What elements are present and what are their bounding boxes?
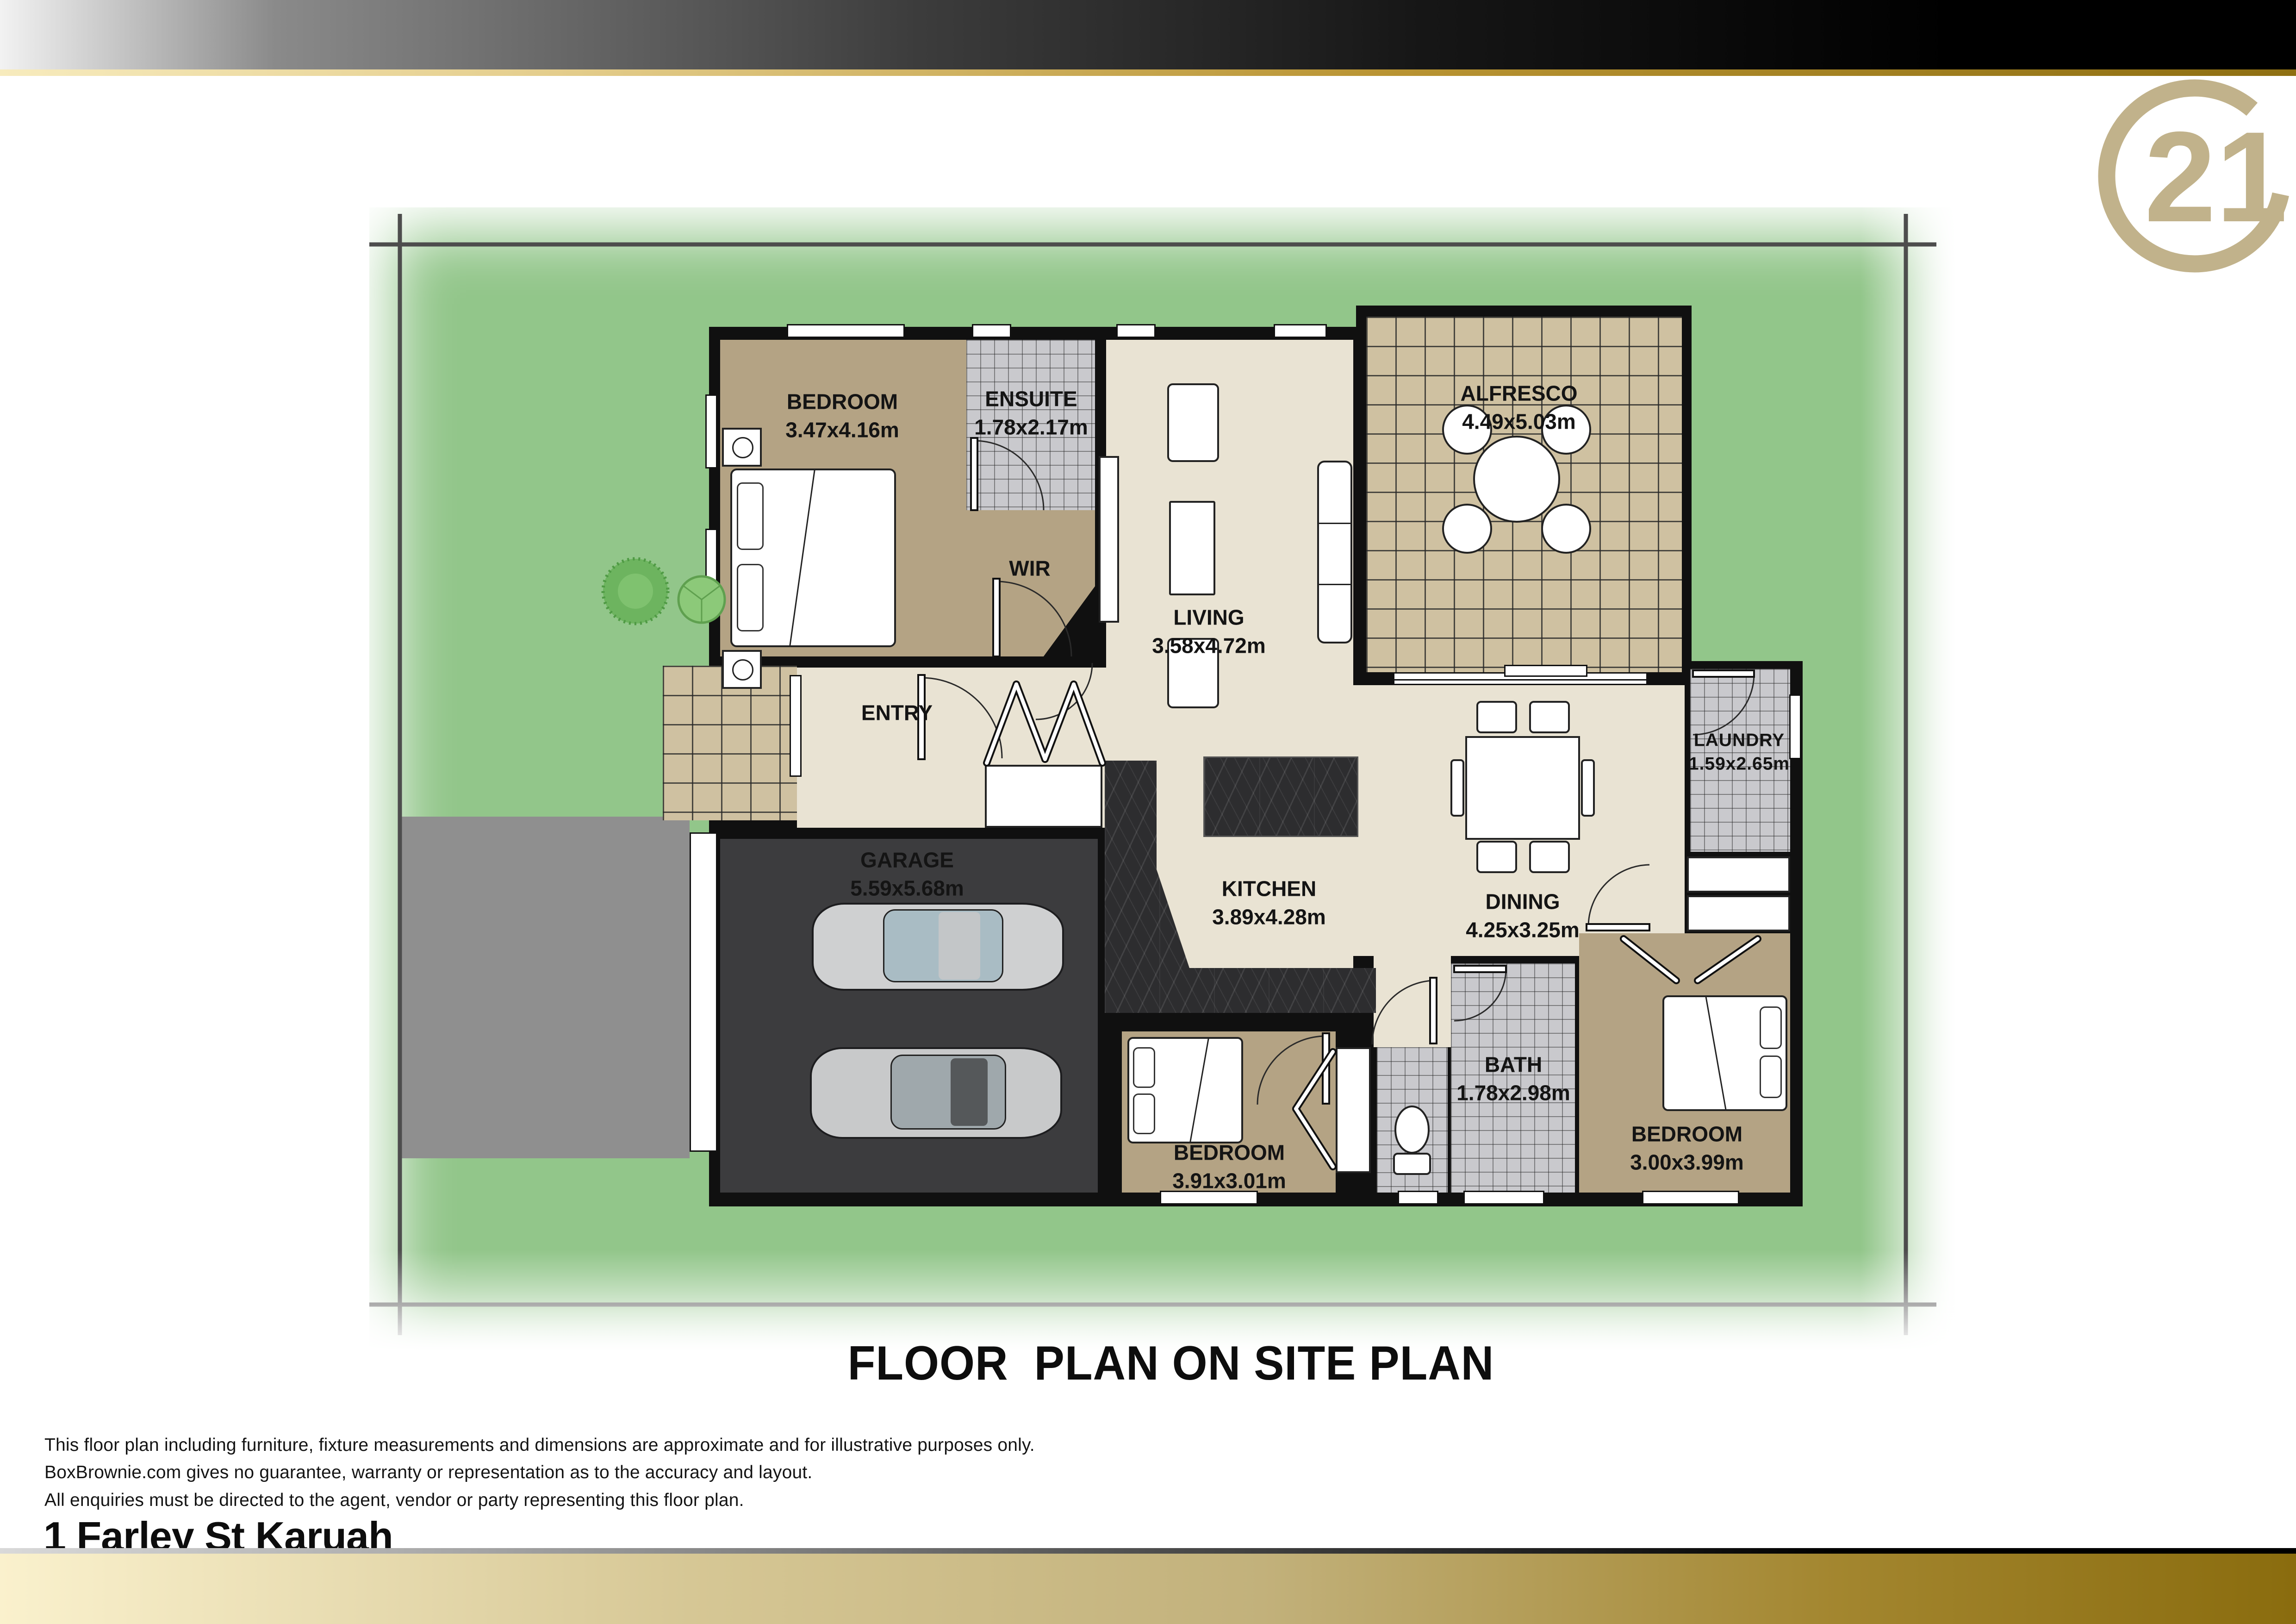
label-alfresco: ALFRESCO 4.49x5.03m <box>1461 379 1578 435</box>
label-ensuite: ENSUITE 1.78x2.17m <box>974 385 1088 441</box>
room-name: KITCHEN <box>1212 874 1326 903</box>
tree-icon <box>603 559 668 624</box>
disclaimer-line-3: All enquiries must be directed to the ag… <box>44 1487 1035 1514</box>
label-kitchen: KITCHEN 3.89x4.28m <box>1212 874 1326 931</box>
room-name: ENSUITE <box>974 385 1088 413</box>
label-bath: BATH 1.78x2.98m <box>1456 1050 1570 1106</box>
toilet-icon <box>1394 1106 1430 1174</box>
room-name: BEDROOM <box>785 387 899 416</box>
room-name: DINING <box>1466 887 1580 916</box>
room-dims: 4.25x3.25m <box>1466 916 1580 944</box>
room-dims: 4.49x5.03m <box>1461 407 1578 436</box>
disclaimer-line-1: This floor plan including furniture, fix… <box>44 1431 1035 1459</box>
label-bedroom-1: BEDROOM 3.47x4.16m <box>785 387 899 443</box>
room-name: ENTRY <box>861 699 933 727</box>
disclaimer-text: This floor plan including furniture, fix… <box>44 1431 1035 1514</box>
page-title: FLOOR PLAN ON SITE PLAN <box>732 1336 1611 1391</box>
label-wir: WIR <box>1009 555 1050 583</box>
dining-table-icon <box>1451 702 1594 872</box>
bottom-gold-bar <box>0 1554 2296 1624</box>
room-dims: 1.78x2.17m <box>974 413 1088 441</box>
room-name: BEDROOM <box>1630 1120 1744 1148</box>
room-dims: 3.47x4.16m <box>785 416 899 444</box>
label-laundry: LAUNDRY 1.59x2.65m <box>1689 729 1790 776</box>
label-living: LIVING 3.58x4.72m <box>1152 603 1266 659</box>
door-leaves <box>918 438 1754 1104</box>
room-name: GARAGE <box>850 846 964 874</box>
room-name: LAUNDRY <box>1689 729 1790 752</box>
room-dims: 5.59x5.68m <box>850 874 964 902</box>
room-name: LIVING <box>1152 603 1266 631</box>
room-dims: 3.00x3.99m <box>1630 1148 1744 1176</box>
label-dining: DINING 4.25x3.25m <box>1466 887 1580 943</box>
room-dims: 1.78x2.98m <box>1456 1079 1570 1107</box>
door-arcs <box>921 441 1754 1105</box>
label-garage: GARAGE 5.59x5.68m <box>850 846 964 902</box>
label-bedroom-3: BEDROOM 3.00x3.99m <box>1630 1120 1744 1176</box>
floorplan-page: { "brand": { "logo_number": "21", "logo_… <box>0 0 2296 1624</box>
bottom-gradient-bar <box>0 1548 2296 1554</box>
room-dims: 1.59x2.65m <box>1689 752 1790 776</box>
label-bedroom-2: BEDROOM 3.91x3.01m <box>1172 1138 1286 1194</box>
label-entry: ENTRY <box>861 699 933 727</box>
room-name: WIR <box>1009 555 1050 583</box>
room-name: BATH <box>1456 1050 1570 1079</box>
room-dims: 3.91x3.01m <box>1172 1167 1286 1195</box>
bush-icon <box>678 576 725 623</box>
room-dims: 3.58x4.72m <box>1152 631 1266 660</box>
disclaimer-line-2: BoxBrownie.com gives no guarantee, warra… <box>44 1459 1035 1486</box>
room-dims: 3.89x4.28m <box>1212 903 1326 931</box>
room-name: BEDROOM <box>1172 1138 1286 1167</box>
room-name: ALFRESCO <box>1461 379 1578 407</box>
